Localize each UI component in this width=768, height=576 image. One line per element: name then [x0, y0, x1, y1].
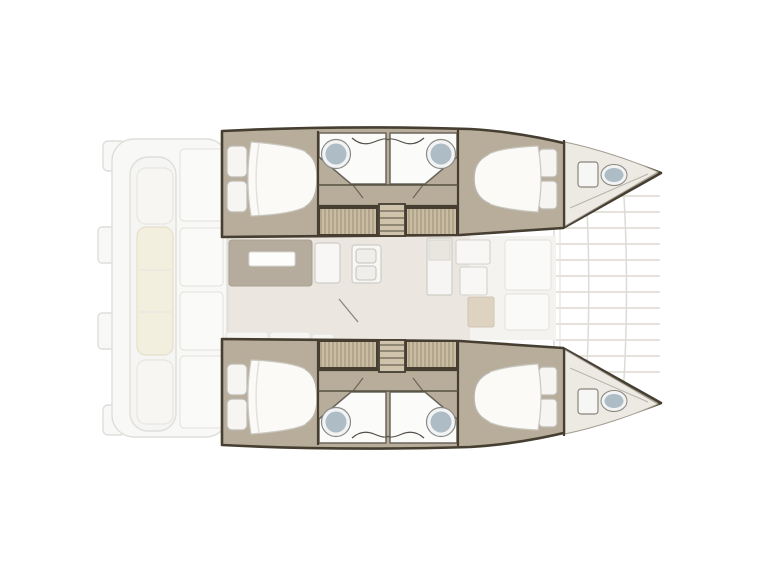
table-tray — [249, 252, 295, 266]
aft-cockpit — [98, 139, 228, 437]
galley-counter — [460, 267, 487, 295]
floor-plan-canvas — [0, 0, 768, 576]
bow-washbasin — [605, 168, 624, 182]
bed-pillow — [227, 181, 247, 212]
bed-pillow — [227, 146, 247, 177]
deck-box — [180, 356, 227, 428]
bench-cushion-upper — [137, 168, 173, 224]
washbasin — [326, 144, 347, 165]
bench-cushion — [137, 227, 173, 355]
wardrobe-locker-aft — [319, 208, 377, 235]
salon-seat — [315, 243, 340, 283]
galley-counter — [456, 240, 490, 264]
bed-pillow — [539, 181, 557, 209]
deck-box — [180, 149, 227, 221]
forward-seat — [505, 240, 551, 290]
deck-box — [180, 292, 223, 350]
deck-box — [180, 228, 223, 286]
salon — [226, 236, 556, 356]
floor-mat — [468, 297, 494, 327]
fridge-top — [429, 240, 450, 260]
galley-sink-bowl — [356, 266, 376, 280]
bed-pillow — [539, 149, 557, 177]
forward-seat — [505, 294, 549, 330]
companionway-steps — [379, 204, 405, 236]
washbasin — [431, 144, 452, 165]
bench-cushion-lower — [137, 360, 173, 424]
galley-sink-bowl — [356, 249, 376, 263]
wardrobe-locker-fwd — [406, 208, 457, 235]
bow-locker — [578, 162, 598, 187]
